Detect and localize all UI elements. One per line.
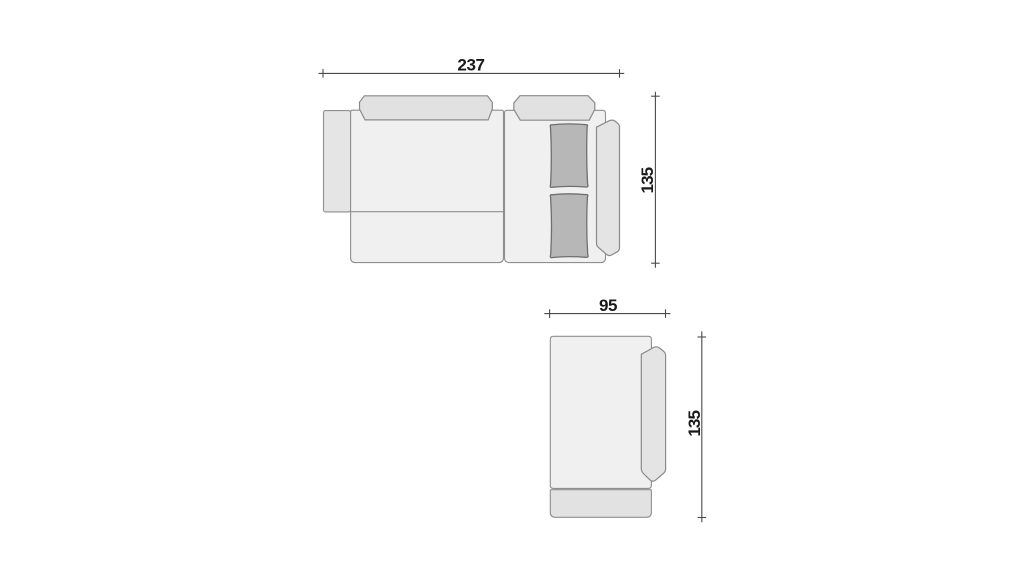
svg-text:95: 95 bbox=[599, 296, 617, 315]
svg-text:135: 135 bbox=[685, 411, 704, 437]
svg-text:135: 135 bbox=[638, 167, 657, 193]
svg-text:237: 237 bbox=[457, 56, 484, 75]
